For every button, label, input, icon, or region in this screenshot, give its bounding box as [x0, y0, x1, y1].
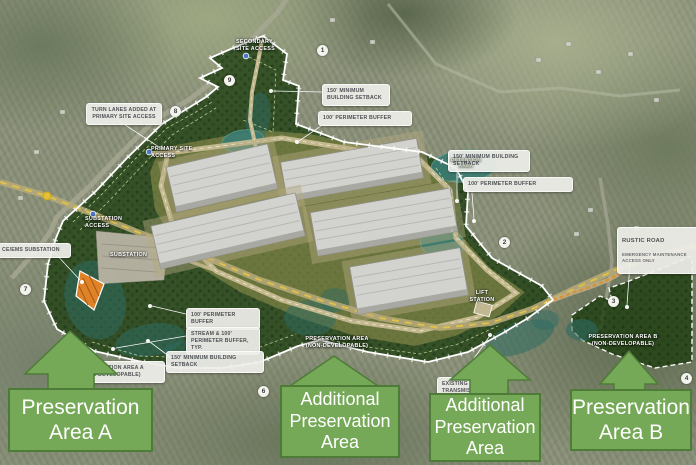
- site-boundary: [44, 36, 553, 368]
- callout-setback-sw: 150' MINIMUM BUILDING SETBACK: [166, 351, 264, 373]
- label-primary-access: PRIMARY SITE ACCESS: [151, 146, 195, 160]
- map-marker-9: 9: [224, 75, 235, 86]
- building-4: [302, 180, 466, 264]
- map-marker-8: 8: [170, 106, 181, 117]
- public-roads: [12, 0, 680, 330]
- site-boundary-ticks: [44, 36, 553, 368]
- leader-lines: [54, 89, 630, 377]
- access-point-markers: [43, 53, 249, 217]
- site-area-fill: [44, 36, 553, 368]
- callout-preservation-a: PRESERVATION AREA A (NON-DEVELOPABLE): [58, 361, 165, 383]
- map-marker-3: 3: [608, 296, 619, 307]
- main-road-east-west: [0, 182, 696, 328]
- callout-buffer-top: 100' PERIMETER BUFFER: [318, 111, 412, 126]
- legend-additional-preservation-2: Additional Preservation Area: [429, 393, 541, 462]
- label-preservation-center: PRESERVATION AREA (NON-DEVELOPABLE): [288, 336, 386, 350]
- arrow-preservation-b: [600, 351, 658, 393]
- callout-buffer-right: 100' PERIMETER BUFFER: [463, 177, 573, 192]
- detention-ponds: [221, 127, 499, 262]
- label-preservation-b: PRESERVATION AREA B (NON-DEVELOPABLE): [573, 334, 673, 348]
- callout-rustic-road: RUSTIC ROAD EMERGENCY MAINTENANCE ACCESS…: [617, 227, 696, 274]
- building-2: [272, 130, 431, 210]
- streams-group: [56, 91, 598, 366]
- label-secondary-access: SECONDARY SITE ACCESS: [236, 39, 282, 53]
- rustic-road-subtitle: EMERGENCY MAINTENANCE ACCESS ONLY: [622, 252, 696, 263]
- building-5: [342, 240, 477, 323]
- legend-preservation-area-a: Preservation Area A: [8, 388, 153, 452]
- map-marker-4: 4: [681, 373, 692, 384]
- site-plan-map: TURN LANES ADDED AT PRIMARY SITE ACCESS …: [0, 0, 696, 465]
- label-lift-station: LIFT STATION: [464, 290, 500, 304]
- legend-additional-preservation-1: Additional Preservation Area: [280, 385, 400, 458]
- map-marker-7: 7: [20, 284, 31, 295]
- orange-parcel: [76, 271, 104, 310]
- rustic-road-title: RUSTIC ROAD: [622, 238, 696, 246]
- callout-setback-top: 150' MINIMUM BUILDING SETBACK: [322, 84, 390, 106]
- site-area-canopy: [44, 36, 553, 368]
- map-marker-6: 6: [258, 386, 269, 397]
- building-3: [143, 185, 314, 278]
- label-substation: SUBSTATION: [110, 252, 160, 259]
- legend-preservation-area-b: Preservation Area B: [570, 389, 692, 451]
- map-marker-2: 2: [499, 237, 510, 248]
- callout-turn-lanes: TURN LANES ADDED AT PRIMARY SITE ACCESS: [86, 103, 162, 125]
- map-marker-1: 1: [317, 45, 328, 56]
- aerial-houses: [18, 18, 659, 244]
- label-substation-access: SUBSTATION ACCESS: [85, 216, 125, 230]
- label-detention-area: DETENTION AREA: [446, 158, 486, 170]
- callout-ems-substation: CE/EMS SUBSTATION: [0, 243, 71, 258]
